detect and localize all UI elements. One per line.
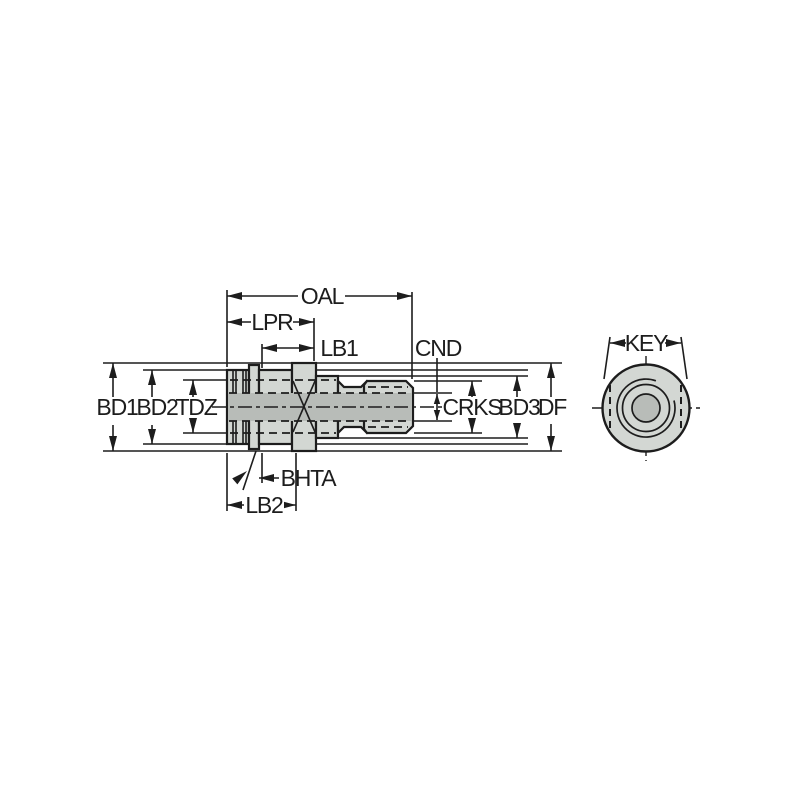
dim-label-bd2: BD2: [136, 394, 178, 420]
bhta-angle-reference-line: [243, 451, 256, 490]
tool-adapter-drawing: OAL LPR LB1 CND BD1 BD2 TDZ CRKS BD3 DF …: [0, 0, 800, 800]
dim-label-bhta: BHTA: [281, 465, 338, 491]
dim-label-crks: CRKS: [442, 394, 502, 420]
dim-label-tdz: TDZ: [175, 394, 217, 420]
dim-label-lb1: LB1: [320, 335, 358, 361]
dim-label-key: KEY: [625, 330, 668, 356]
ext-line-key-right: [681, 337, 687, 379]
dim-label-bd3: BD3: [498, 394, 540, 420]
end-view-center-hole: [632, 394, 660, 422]
dim-label-oal: OAL: [301, 283, 345, 309]
dim-label-lb2: LB2: [245, 492, 283, 518]
dim-label-bd1: BD1: [96, 394, 138, 420]
dim-label-cnd: CND: [415, 335, 462, 361]
ext-line-key-left: [604, 337, 610, 379]
engineering-drawing-canvas: OAL LPR LB1 CND BD1 BD2 TDZ CRKS BD3 DF …: [0, 0, 800, 800]
dim-label-lpr: LPR: [251, 309, 293, 335]
dim-label-df: DF: [538, 394, 567, 420]
